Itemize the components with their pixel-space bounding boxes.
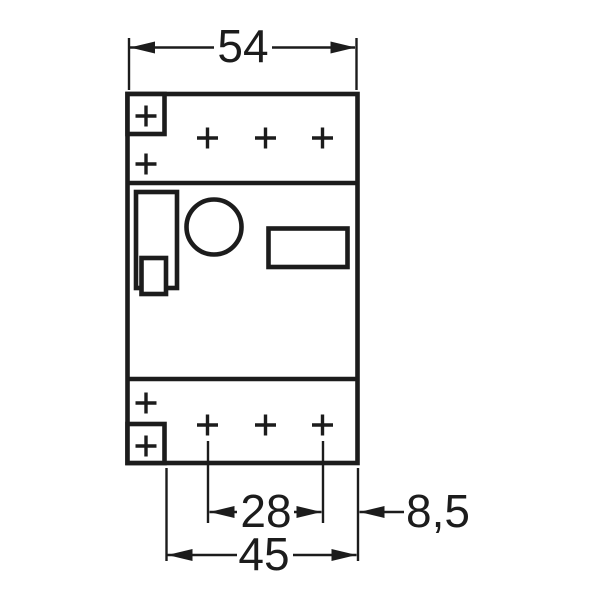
arrowhead-left-icon [210, 506, 235, 518]
arrowhead-left-icon [130, 42, 155, 54]
dimension-drawing: 54 28 45 8,5 [0, 0, 600, 600]
arrowhead-right-icon [331, 42, 356, 54]
arrowhead-right-icon [332, 549, 357, 561]
bottom-width-dimension-label: 45 [238, 528, 289, 580]
right-offset-dimension-label: 8,5 [406, 485, 470, 537]
arrowhead-right-icon [297, 506, 322, 518]
arrowhead-left-icon [168, 549, 193, 561]
switch-lever-handle [142, 258, 167, 294]
drawing-canvas: 54 28 45 8,5 [0, 0, 600, 600]
top-width-dimension-label: 54 [217, 20, 268, 72]
top-width-dimension: 54 [129, 20, 357, 90]
right-offset-dimension: 8,5 [360, 485, 470, 537]
arrowhead-left-icon [360, 506, 385, 518]
